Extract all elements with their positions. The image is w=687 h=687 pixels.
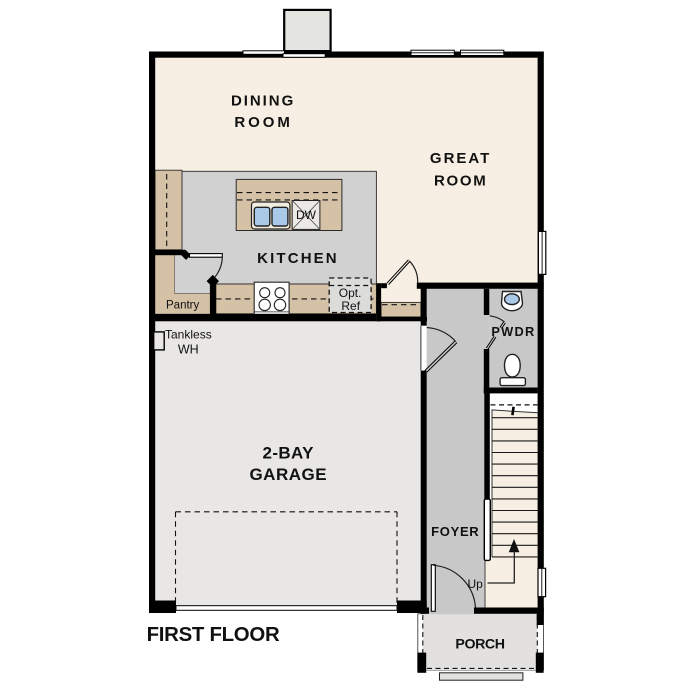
svg-text:ROOM: ROOM xyxy=(234,114,290,131)
svg-text:ROOM: ROOM xyxy=(434,173,486,190)
svg-text:Tankless: Tankless xyxy=(165,327,212,341)
svg-text:FOYER: FOYER xyxy=(431,524,479,539)
svg-text:FIRST FLOOR: FIRST FLOOR xyxy=(147,624,280,646)
svg-text:PWDR: PWDR xyxy=(491,324,534,339)
svg-text:DINING: DINING xyxy=(231,93,293,110)
svg-text:Ref: Ref xyxy=(341,299,360,313)
svg-text:Pantry: Pantry xyxy=(166,300,199,312)
svg-text:Opt.: Opt. xyxy=(339,286,362,300)
svg-text:DW: DW xyxy=(296,208,317,222)
svg-text:Up: Up xyxy=(468,577,484,591)
svg-text:PORCH: PORCH xyxy=(455,636,505,652)
svg-text:GREAT: GREAT xyxy=(430,150,489,167)
svg-text:2-BAY: 2-BAY xyxy=(263,443,315,462)
svg-text:WH: WH xyxy=(178,342,199,356)
svg-text:GARAGE: GARAGE xyxy=(249,465,326,484)
